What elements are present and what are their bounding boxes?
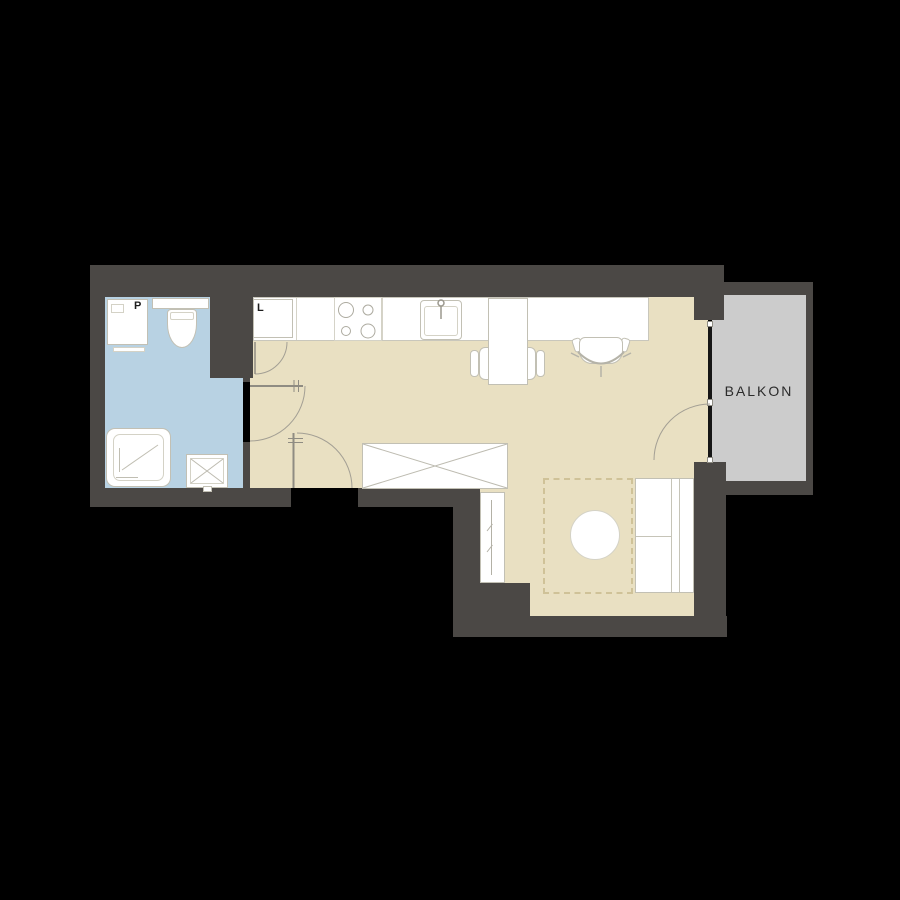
office-chair-icon: [579, 337, 623, 364]
desk-chair-armrest-left: [470, 350, 479, 377]
wardrobe-icon: [362, 443, 508, 489]
wall-bathroom-stub-bottom: [243, 442, 250, 488]
wall-top-right-pier: [694, 265, 724, 320]
window-frame-tick: [707, 457, 713, 463]
wall-left: [90, 297, 105, 507]
stove-icon: [334, 297, 382, 341]
wall-top: [90, 265, 724, 297]
balcony-rail-right: [806, 282, 813, 495]
washing-machine-tray: [113, 347, 145, 352]
shower-tray: [113, 434, 164, 481]
desk-icon: [488, 298, 528, 385]
wall-lower-corner-block: [480, 583, 530, 637]
window-frame-tick: [707, 399, 713, 406]
washing-machine-detail: [111, 304, 124, 313]
wall-bathroom-divider: [210, 297, 253, 378]
bathroom-sink-basin: [190, 458, 224, 484]
tv-board-icon: [480, 492, 505, 583]
bed-icon: [635, 478, 694, 593]
fridge-label: L: [257, 303, 264, 314]
wall-bottom-right-of-entry: [358, 488, 480, 507]
kitchen-sink-basin: [424, 306, 458, 336]
toilet-cistern: [152, 298, 209, 309]
toilet-seat-detail: [170, 312, 194, 320]
window-frame-tick: [707, 321, 713, 327]
balcony-door-floor-strip: [694, 320, 708, 462]
floor-plan: P L BALKON: [0, 0, 900, 900]
balcony-rail-top: [722, 282, 813, 295]
balcony-label: BALKON: [712, 384, 806, 398]
desk-chair-armrest-right: [536, 350, 545, 377]
wall-lower-left-side: [453, 507, 480, 637]
bathroom-sink-tap: [203, 486, 212, 492]
washing-machine-label: P: [134, 301, 141, 312]
balcony-rail-bottom: [722, 481, 813, 495]
wall-bathroom-stub-top: [243, 378, 250, 382]
round-table-icon: [570, 510, 620, 560]
wall-bottom-left: [90, 488, 291, 507]
